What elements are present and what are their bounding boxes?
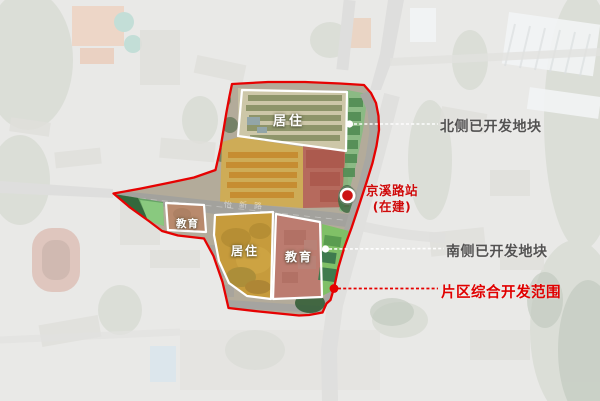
station-marker (339, 187, 357, 205)
south-education-label: 教育 (285, 248, 313, 265)
scope-callout-dot (330, 284, 339, 293)
station-name: 京溪路站 (360, 183, 424, 199)
planning-map: 怡新路 居住 教育 居住 教育 京溪路站 (在建) 北侧已开发地块 南侧已开发地… (0, 0, 600, 401)
north-callout-dot (346, 120, 353, 127)
road-name-label: 怡新路 (224, 199, 269, 212)
map-graphics (0, 0, 600, 401)
station-status: (在建) (360, 199, 424, 215)
scope-callout: 片区综合开发范围 (441, 281, 561, 302)
north-residential-label: 居住 (273, 110, 305, 129)
north-yellow-tint (220, 137, 303, 208)
south-callout-dot (322, 245, 329, 252)
west-education-label: 教育 (176, 216, 199, 231)
south-residential-label: 居住 (231, 242, 259, 259)
station-label: 京溪路站 (在建) (360, 183, 424, 214)
south-developed-callout: 南侧已开发地块 (446, 241, 548, 261)
north-developed-callout: 北侧已开发地块 (440, 116, 542, 136)
